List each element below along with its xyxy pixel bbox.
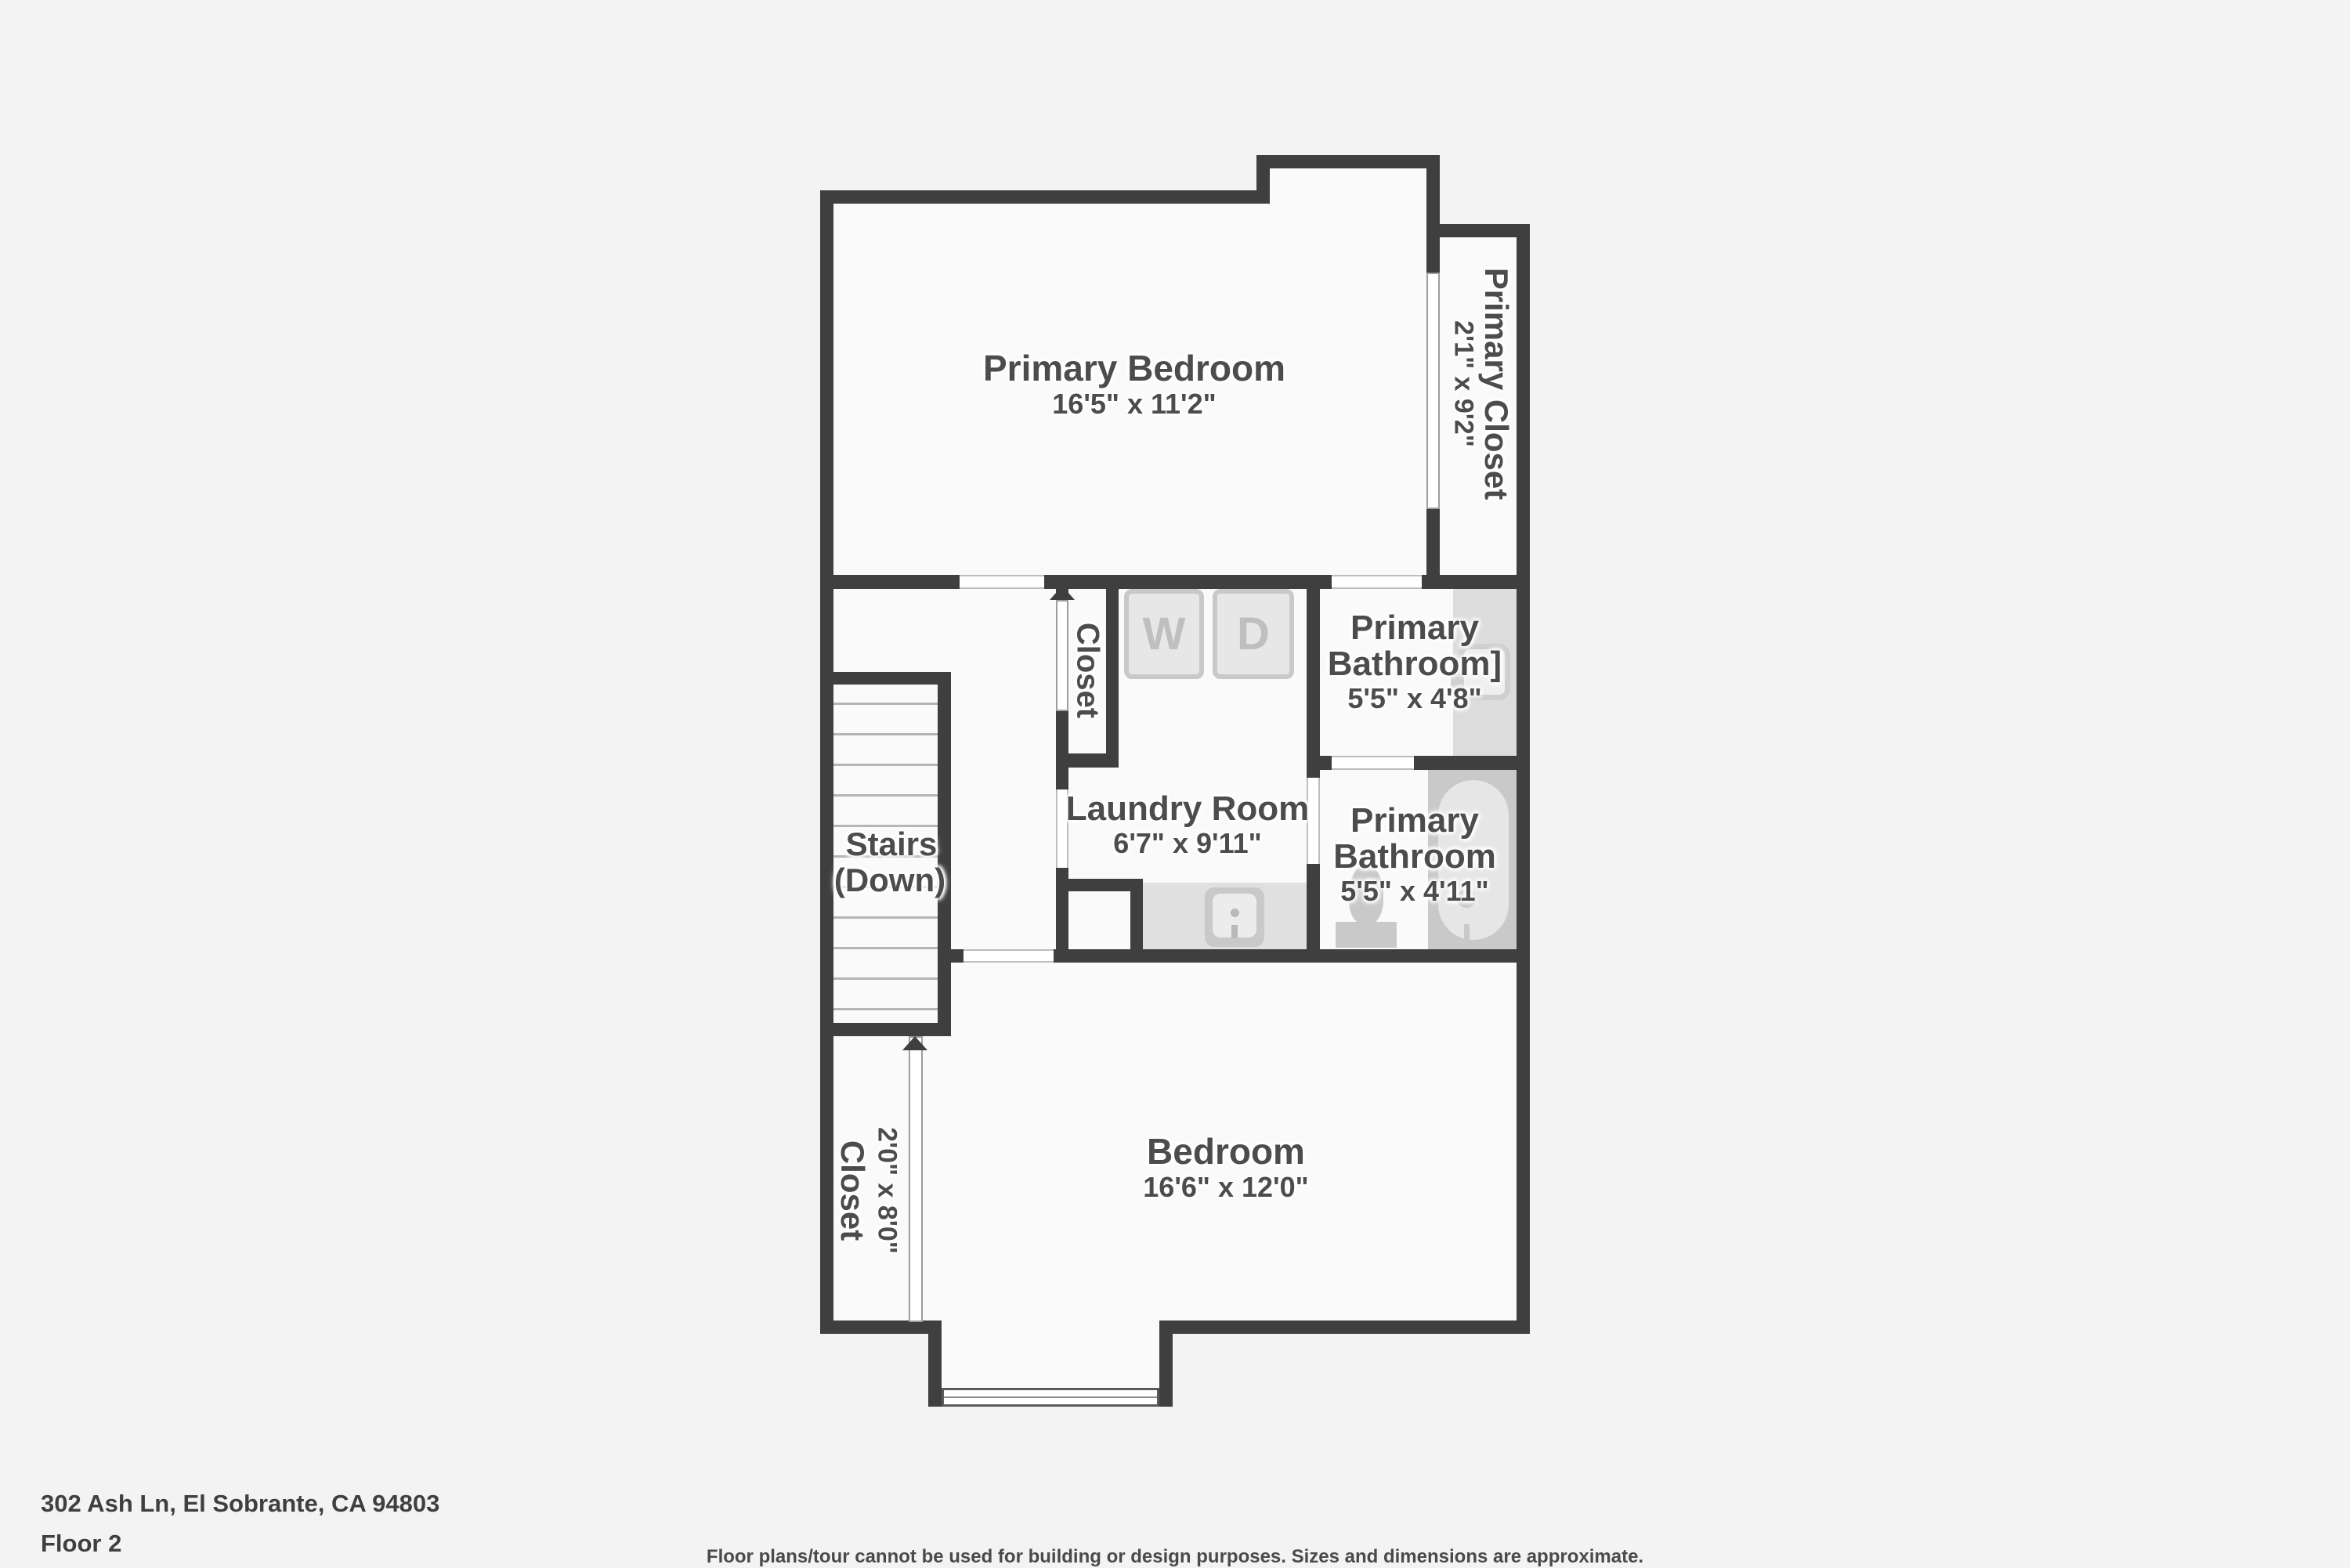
label-bath-lower-1: Primary bbox=[1350, 801, 1479, 840]
wall-bedroom-bottom-b bbox=[1044, 575, 1332, 589]
stair-tread bbox=[833, 703, 938, 705]
stair-tread bbox=[833, 947, 938, 949]
wall-exterior-top bbox=[820, 190, 1270, 204]
dims-closet-left: 2'0" x 8'0" bbox=[872, 1127, 902, 1254]
address-text: 302 Ash Ln, El Sobrante, CA 94803 bbox=[41, 1490, 439, 1518]
stair-tread bbox=[833, 977, 938, 980]
wall-bedroom-bottom-a bbox=[820, 575, 960, 589]
label-closet-mid: Closet bbox=[1070, 623, 1105, 718]
wall-exterior-right bbox=[1517, 224, 1530, 1334]
wall-notch-top bbox=[1256, 155, 1440, 168]
dims-primary-bedroom: 16'5" x 11'2" bbox=[1052, 388, 1216, 421]
dims-bath-lower: 5'5" x 4'11" bbox=[1340, 875, 1488, 908]
wall-exterior-bottom-right bbox=[1159, 1321, 1530, 1334]
dims-primary-closet: 2'1" x 9'2" bbox=[1448, 320, 1479, 447]
dryer-icon: D bbox=[1213, 589, 1294, 679]
wall-hall-laundry-stub bbox=[1056, 768, 1068, 789]
wall-nook-right bbox=[1130, 879, 1143, 949]
laundry-sink-faucet-stub bbox=[1231, 925, 1238, 938]
sliding-door-closet-mid bbox=[1056, 600, 1068, 711]
dims-bath-upper: 5'5" x 4'8" bbox=[1347, 682, 1481, 715]
wall-bedroom-right-upper bbox=[1426, 155, 1440, 273]
door-interbath bbox=[1332, 756, 1414, 770]
wall-stairs-right bbox=[938, 672, 951, 1036]
wall-hall-bed-b bbox=[1054, 949, 1530, 963]
door-pointer-closet-left bbox=[902, 1036, 927, 1050]
wall-bay-right bbox=[1159, 1321, 1173, 1407]
stair-tread bbox=[833, 794, 938, 797]
label-bath-upper-1: Primary bbox=[1350, 609, 1479, 648]
wall-stairs-bottom bbox=[833, 1023, 951, 1036]
label-primary-closet: Primary Closet bbox=[1477, 268, 1515, 500]
stair-tread bbox=[833, 916, 938, 919]
label-stairs-2: (Down) bbox=[834, 862, 945, 899]
label-bedroom: Bedroom bbox=[1147, 1130, 1305, 1172]
floor-bay-window bbox=[942, 1321, 1159, 1388]
floor-notch bbox=[1270, 168, 1426, 204]
door-hall-bedroom bbox=[963, 949, 1054, 963]
sliding-door-primary-closet bbox=[1426, 273, 1440, 509]
laundry-sink-faucet-dot bbox=[1231, 909, 1239, 917]
label-stairs-1: Stairs bbox=[846, 826, 938, 863]
door-pointer-closet-mid bbox=[1050, 586, 1075, 600]
wall-hall-bed-a bbox=[951, 949, 963, 963]
stair-tread bbox=[833, 733, 938, 735]
dims-laundry: 6'7" x 9'11" bbox=[1113, 827, 1261, 860]
floor-plan-canvas: W D bbox=[0, 0, 2350, 1566]
washer-icon: W bbox=[1124, 589, 1204, 679]
dryer-letter: D bbox=[1237, 608, 1270, 660]
label-bath-upper-2: Bathroom] bbox=[1328, 645, 1502, 684]
wall-exterior-left bbox=[820, 190, 833, 1334]
label-primary-bedroom: Primary Bedroom bbox=[983, 347, 1285, 389]
wall-interbath-b bbox=[1414, 756, 1517, 770]
wall-bedroom-bottom-c bbox=[1422, 575, 1530, 589]
bay-window bbox=[942, 1388, 1159, 1407]
stair-tread bbox=[833, 764, 938, 766]
label-closet-left: Closet bbox=[833, 1140, 871, 1241]
sliding-door-closet-left bbox=[909, 1036, 923, 1322]
wall-exterior-bottom-left bbox=[820, 1321, 942, 1334]
wall-interbath-a bbox=[1320, 756, 1332, 770]
wall-nook-left bbox=[1056, 868, 1068, 949]
disclaimer-text: Floor plans/tour cannot be used for buil… bbox=[0, 1546, 2350, 1568]
label-bath-lower-2: Bathroom bbox=[1333, 837, 1496, 876]
wall-laundry-bath bbox=[1307, 589, 1320, 949]
wall-closet-mid-right bbox=[1106, 575, 1119, 768]
door-primary-bedroom bbox=[960, 575, 1044, 589]
dims-bedroom: 16'6" x 12'0" bbox=[1143, 1171, 1308, 1204]
toilet-tank-icon bbox=[1336, 922, 1397, 948]
washer-letter: W bbox=[1143, 608, 1186, 660]
wall-closet-mid-bottom bbox=[1056, 753, 1119, 768]
door-bath-upper bbox=[1332, 575, 1422, 589]
label-laundry: Laundry Room bbox=[1066, 789, 1309, 829]
wall-bay-left bbox=[928, 1321, 942, 1407]
bay-window-mullion bbox=[944, 1396, 1157, 1398]
wall-stairs-top bbox=[833, 672, 938, 685]
stair-tread bbox=[833, 1008, 938, 1010]
bathtub-overflow bbox=[1464, 924, 1470, 940]
